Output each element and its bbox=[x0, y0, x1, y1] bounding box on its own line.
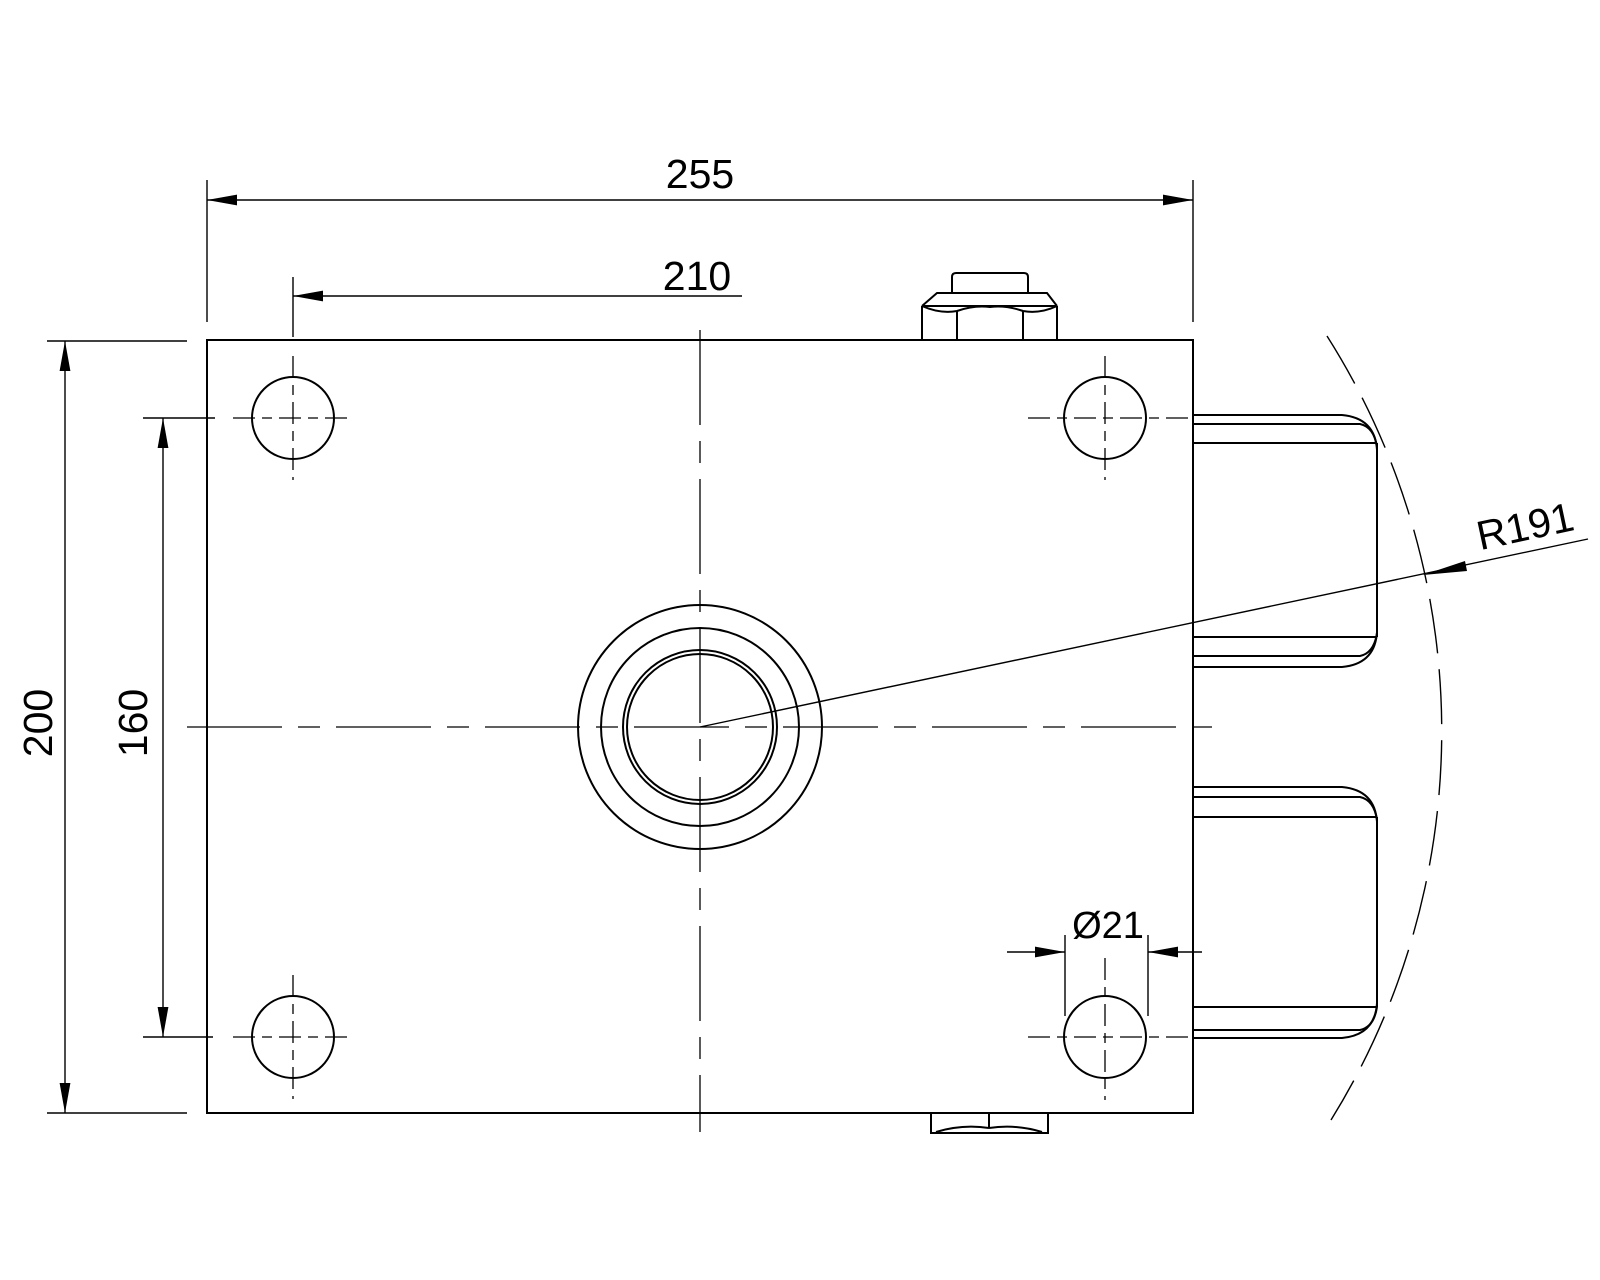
top-bolt-head bbox=[952, 273, 1028, 293]
dim-255-arrow-right bbox=[1163, 195, 1193, 206]
dimension-210: 210 bbox=[293, 253, 742, 337]
dim-255-extension-lines bbox=[207, 180, 1193, 322]
top-bolt bbox=[922, 273, 1057, 340]
technical-drawing-canvas: R191 255 210 200 160 Ø21 bbox=[0, 0, 1600, 1280]
centerlines bbox=[187, 330, 1212, 1132]
dim-200-arrow-bottom bbox=[60, 1083, 71, 1113]
dim-label-255: 255 bbox=[666, 151, 734, 197]
upper-port-fitting bbox=[1193, 415, 1377, 667]
lower-port-fitting bbox=[1193, 787, 1377, 1038]
dim-label-dia21: Ø21 bbox=[1072, 905, 1144, 947]
radius-arrowhead bbox=[1423, 561, 1467, 575]
dim-210-arrow-left bbox=[293, 291, 323, 302]
upper-fitting-outer-top bbox=[1193, 415, 1377, 450]
dim-label-210: 210 bbox=[663, 253, 731, 299]
lower-fitting-mid-bottom bbox=[1193, 1007, 1377, 1030]
dim-160-arrow-top bbox=[158, 418, 169, 448]
dim-dia21-arrow-left bbox=[1035, 947, 1065, 958]
dim-160-arrow-bottom bbox=[158, 1007, 169, 1037]
pitch-radius-arc bbox=[1327, 336, 1442, 1120]
dim-dia21-arrow-right bbox=[1148, 947, 1178, 958]
dim-dia21-extension-lines bbox=[1065, 935, 1148, 1016]
bottom-bolt bbox=[931, 1113, 1048, 1133]
dim-label-r191: R191 bbox=[1472, 494, 1577, 559]
dim-200-arrow-top bbox=[60, 341, 71, 371]
radius-dimension-r191: R191 bbox=[700, 494, 1588, 727]
top-bolt-hex-facets bbox=[957, 311, 1023, 340]
lower-fitting-outer-bottom bbox=[1193, 1003, 1377, 1038]
technical-drawing-page: R191 255 210 200 160 Ø21 bbox=[0, 0, 1600, 1280]
dim-label-200: 200 bbox=[15, 689, 61, 757]
top-bolt-washer bbox=[922, 293, 1057, 306]
dim-255-arrow-left bbox=[207, 195, 237, 206]
dimension-200: 200 bbox=[15, 341, 187, 1113]
dim-label-160: 160 bbox=[110, 689, 156, 757]
